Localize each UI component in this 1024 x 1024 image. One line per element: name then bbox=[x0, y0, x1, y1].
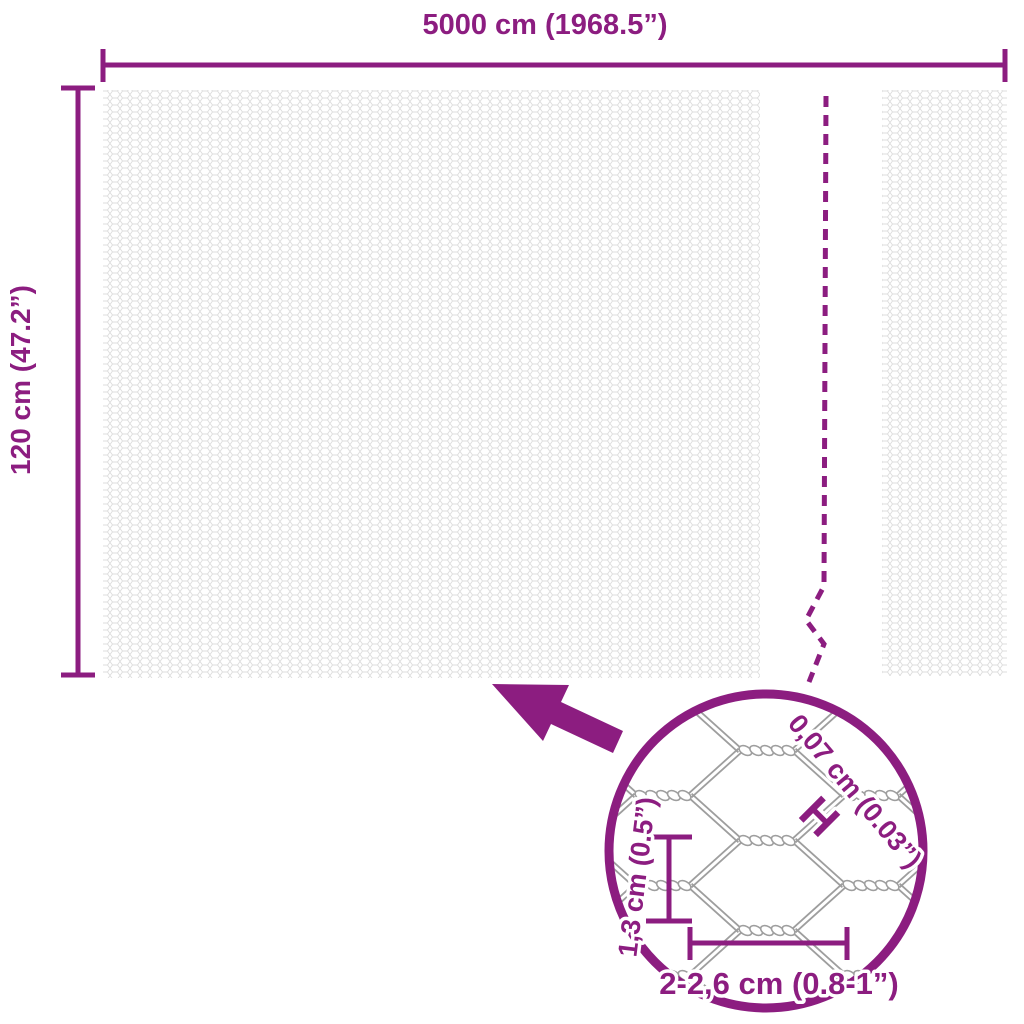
width-dimension: 5000 cm (1968.5”) bbox=[103, 9, 1005, 82]
mesh-panel-right bbox=[882, 90, 1007, 676]
diagram-canvas: 5000 cm (1968.5”) 120 cm (47.2”) H 0,07 … bbox=[0, 0, 1024, 1024]
zoom-arrow-icon bbox=[492, 684, 623, 753]
mesh-opening-width-label: 2-2,6 cm (0.8-1”) bbox=[659, 966, 899, 1001]
height-dimension-label: 120 cm (47.2”) bbox=[5, 285, 36, 475]
product-dimension-diagram: 5000 cm (1968.5”) 120 cm (47.2”) H 0,07 … bbox=[0, 0, 1024, 1024]
break-line-icon bbox=[806, 96, 826, 682]
height-dimension: 120 cm (47.2”) bbox=[5, 88, 95, 676]
mesh-panel-main bbox=[103, 90, 760, 678]
width-dimension-label: 5000 cm (1968.5”) bbox=[422, 9, 667, 41]
detail-magnifier: H 0,07 cm (0.03”) 1,3 cm (0.5”) 2-2,6 cm… bbox=[609, 694, 928, 1008]
